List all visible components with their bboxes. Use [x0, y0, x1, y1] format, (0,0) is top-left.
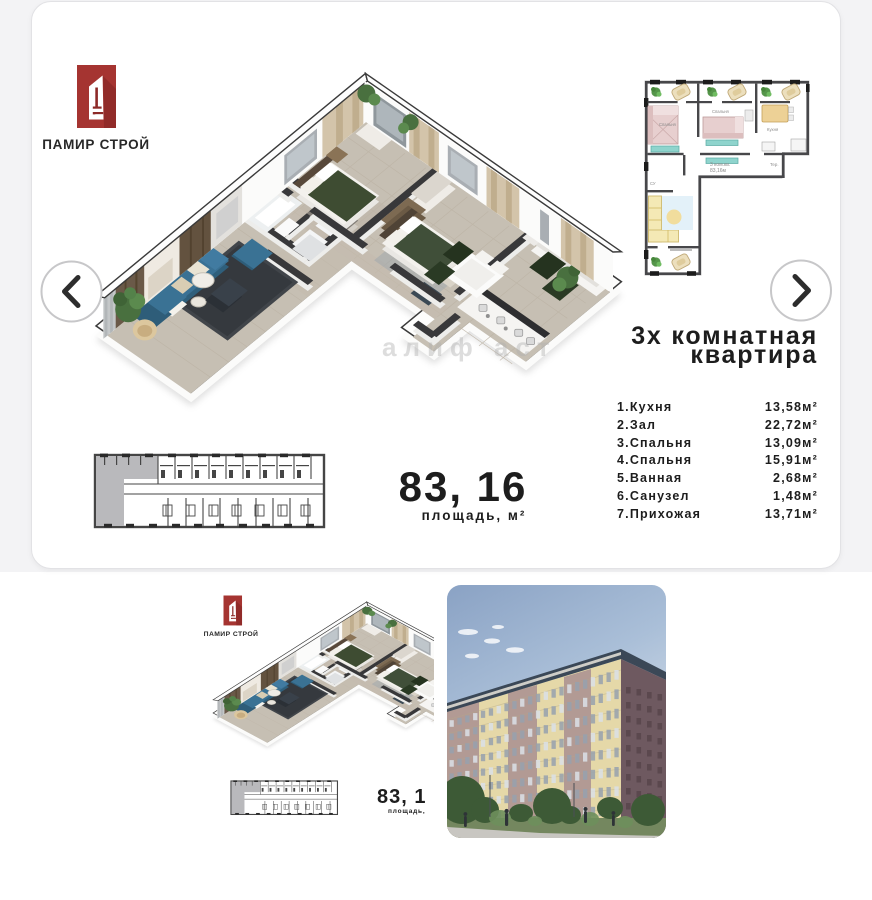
svg-text:1.Кухня: 1.Кухня [617, 400, 672, 414]
svg-text:13,58м²: 13,58м² [765, 400, 818, 414]
svg-text:алиф аст: алиф аст [382, 332, 557, 362]
svg-text:83, 16: 83, 16 [399, 463, 528, 510]
svg-text:4.Спальня: 4.Спальня [617, 453, 692, 467]
svg-text:7.Прихожая: 7.Прихожая [617, 507, 701, 521]
svg-text:Спальня: Спальня [712, 109, 729, 114]
svg-text:83,16м: 83,16м [710, 168, 727, 174]
svg-text:2,68м²: 2,68м² [773, 471, 818, 485]
svg-text:ПАМИР СТРОЙ: ПАМИР СТРОЙ [42, 137, 150, 152]
svg-text:2.Зал: 2.Зал [617, 418, 656, 432]
svg-text:83, 1: 83, 1 [377, 786, 426, 808]
svg-text:1,48м²: 1,48м² [773, 489, 818, 503]
svg-text:квартира: квартира [690, 341, 818, 369]
svg-text:3.Спальня: 3.Спальня [617, 436, 692, 450]
svg-text:5.Ванная: 5.Ванная [617, 471, 682, 485]
svg-text:15,91м²: 15,91м² [765, 453, 818, 467]
svg-text:площадь,: площадь, [388, 808, 425, 815]
svg-text:Спальня: Спальня [659, 122, 676, 127]
svg-text:СУ: СУ [650, 181, 656, 186]
svg-text:13,71м²: 13,71м² [765, 507, 818, 521]
svg-text:6.Санузел: 6.Санузел [617, 489, 690, 503]
svg-text:Тер.: Тер. [770, 162, 779, 167]
svg-text:13,09м²: 13,09м² [765, 436, 818, 450]
svg-text:площадь, м²: площадь, м² [422, 508, 527, 523]
svg-text:Кухня: Кухня [767, 127, 778, 132]
svg-text:22,72м²: 22,72м² [765, 418, 818, 432]
svg-text:ПАМИР СТРОЙ: ПАМИР СТРОЙ [204, 629, 259, 638]
